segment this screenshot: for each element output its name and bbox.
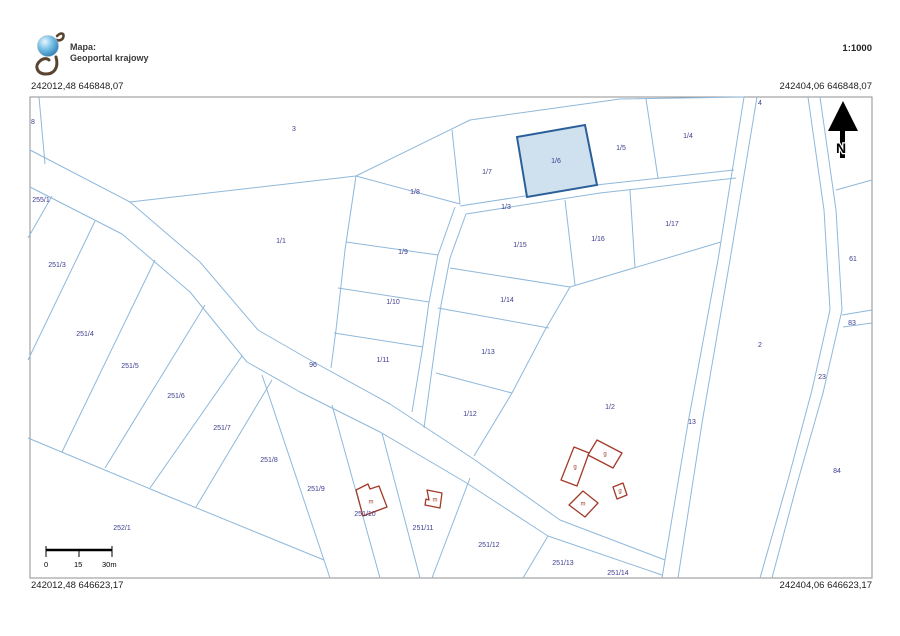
map-canvas[interactable]: N 0 15 30m 83255/1251/31/1251/4251/5251/… bbox=[0, 0, 900, 636]
building-label-g: g bbox=[603, 452, 606, 459]
building-label-m: m bbox=[581, 502, 586, 509]
parcel-label-2: 2 bbox=[758, 342, 762, 350]
parcel-label-1/14: 1/14 bbox=[500, 297, 514, 305]
parcel-label-1/11: 1/11 bbox=[376, 357, 389, 365]
parcel-label-61: 61 bbox=[849, 256, 857, 264]
parcel-label-1/4: 1/4 bbox=[683, 133, 693, 141]
parcel-label-1/3: 1/3 bbox=[501, 204, 511, 212]
parcel-label-1/8: 1/8 bbox=[410, 189, 420, 197]
parcel-label-251/6: 251/6 bbox=[167, 393, 185, 401]
north-arrow-label: N bbox=[836, 140, 846, 156]
parcel-label-13: 13 bbox=[688, 419, 696, 427]
parcel-label-1/12: 1/12 bbox=[463, 411, 477, 419]
parcel-label-251/8: 251/8 bbox=[260, 457, 278, 465]
parcel-label-1/10: 1/10 bbox=[386, 299, 400, 307]
building-label-g: g bbox=[573, 465, 576, 472]
parcel-label-1/17: 1/17 bbox=[665, 221, 679, 229]
parcel-label-251/13: 251/13 bbox=[552, 560, 573, 568]
parcel-label-251/4: 251/4 bbox=[76, 331, 94, 339]
parcel-label-1/13: 1/13 bbox=[481, 349, 495, 357]
svg-text:15: 15 bbox=[74, 560, 82, 569]
parcel-label-251/3: 251/3 bbox=[48, 262, 66, 270]
parcel-label-8: 8 bbox=[31, 119, 35, 127]
parcel-label-1/5: 1/5 bbox=[616, 145, 626, 153]
parcel-label-251/10: 251/10 bbox=[354, 511, 375, 519]
parcel-label-4: 4 bbox=[758, 100, 762, 108]
svg-text:0: 0 bbox=[44, 560, 48, 569]
parcel-label-1/7: 1/7 bbox=[482, 169, 492, 177]
geoportal-print-page: Mapa: Geoportal krajowy 1:1000 242012,48… bbox=[0, 0, 900, 636]
building-label-m: m bbox=[369, 500, 374, 507]
parcel-label-1/16: 1/16 bbox=[591, 236, 605, 244]
parcel-label-1/9: 1/9 bbox=[398, 249, 408, 257]
parcel-label-1/15: 1/15 bbox=[513, 242, 527, 250]
map-frame bbox=[30, 97, 872, 578]
parcel-label-251/14: 251/14 bbox=[607, 570, 628, 578]
parcel-label-23: 23 bbox=[818, 374, 826, 382]
parcel-label-255/1: 255/1 bbox=[32, 197, 50, 205]
parcel-label-1/1: 1/1 bbox=[276, 238, 286, 246]
building-label-g: g bbox=[618, 489, 621, 496]
parcel-label-3: 3 bbox=[292, 126, 296, 134]
parcel-label-251/11: 251/11 bbox=[413, 525, 434, 533]
parcel-label-83: 83 bbox=[848, 320, 856, 328]
parcel-label-251/9: 251/9 bbox=[307, 486, 325, 494]
svg-text:30m: 30m bbox=[102, 560, 117, 569]
parcel-label-251/5: 251/5 bbox=[121, 363, 139, 371]
building-label-m: m bbox=[433, 498, 438, 505]
parcel-label-251/12: 251/12 bbox=[478, 542, 499, 550]
parcel-label-96: 96 bbox=[309, 362, 317, 370]
parcel-label-251/7: 251/7 bbox=[213, 425, 231, 433]
parcel-label-1/2: 1/2 bbox=[605, 404, 615, 412]
parcel-label-1/6: 1/6 bbox=[551, 158, 561, 166]
cadastral-map: N 0 15 30m bbox=[0, 0, 900, 636]
parcel-label-84: 84 bbox=[833, 468, 841, 476]
parcel-label-252/1: 252/1 bbox=[113, 525, 131, 533]
